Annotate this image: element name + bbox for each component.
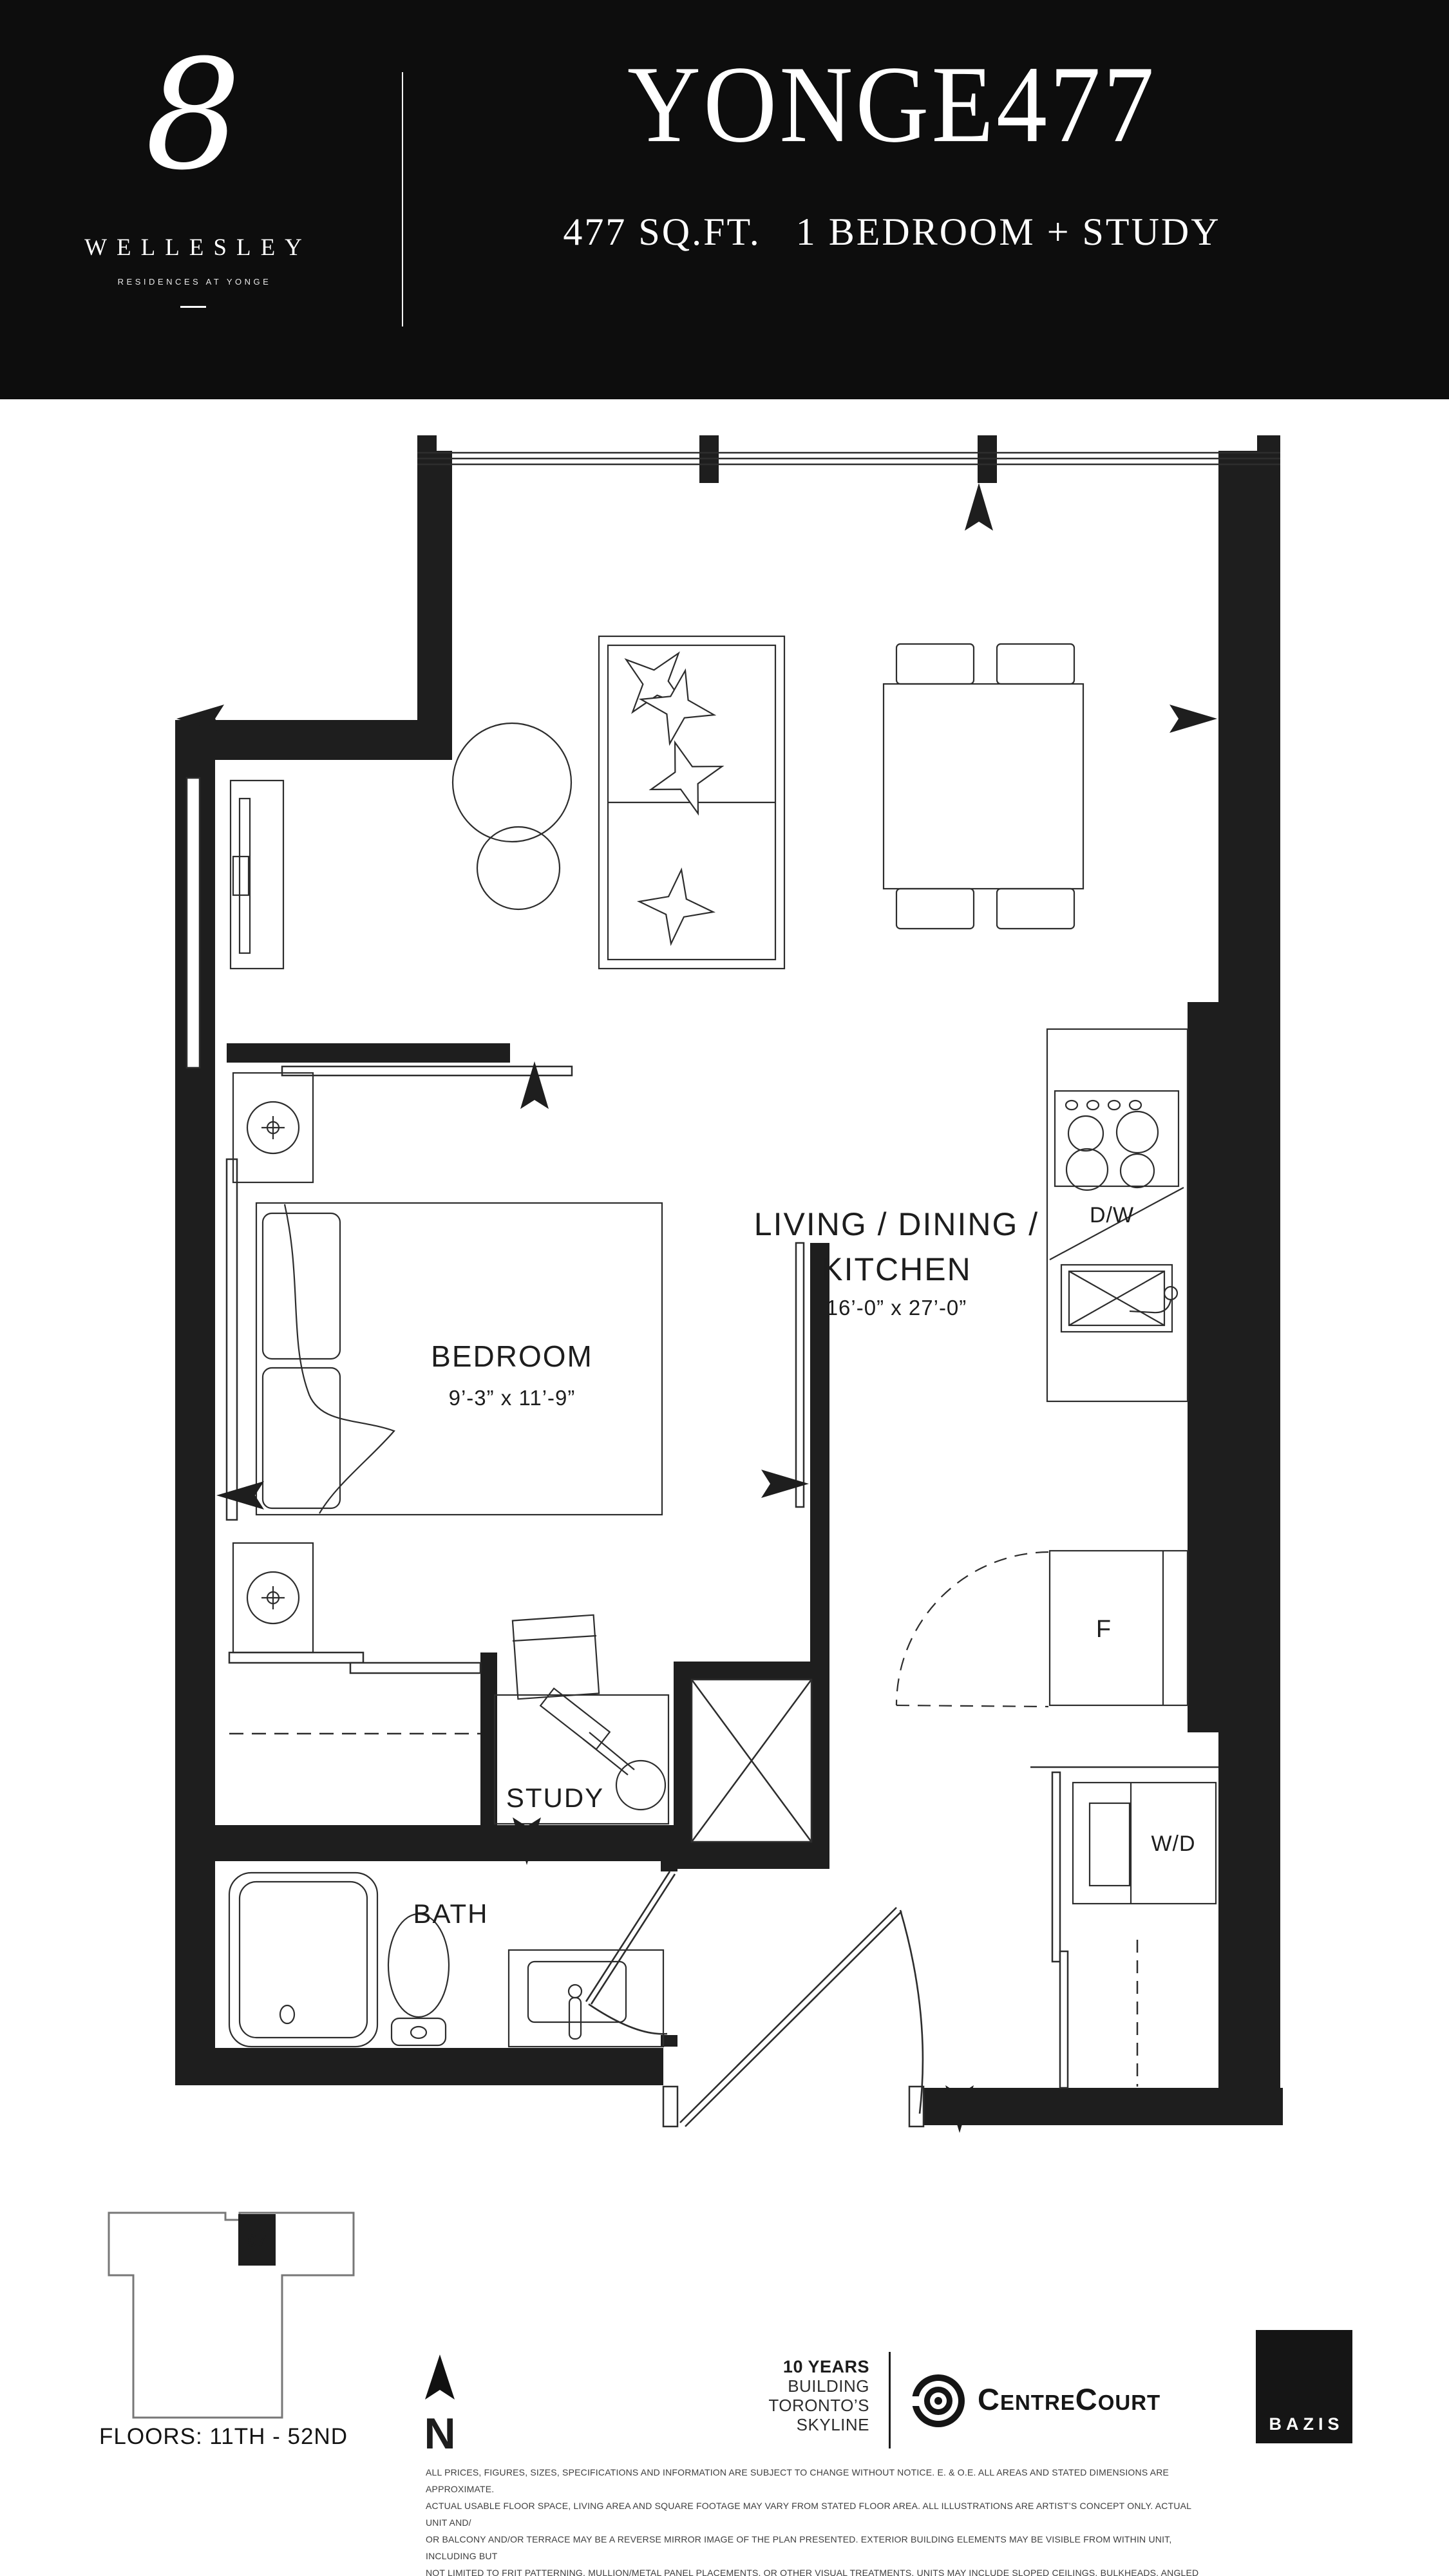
arrow-right-living	[1170, 705, 1217, 733]
toilet-bowl	[388, 1914, 449, 2017]
window-wall-glazing	[417, 453, 1280, 464]
star-pillow	[634, 864, 718, 949]
side-table	[453, 723, 571, 842]
desk-lamp-arm	[589, 1732, 634, 1770]
living-furniture	[231, 630, 1083, 969]
sofa-pillows	[603, 630, 734, 949]
bedroom-dims: 9’-3” x 11’-9”	[449, 1386, 576, 1410]
tagline-line: 10 YEARS	[741, 2357, 869, 2376]
compass: N	[424, 2354, 455, 2458]
faucet-head	[569, 1985, 582, 1998]
shaft	[692, 1680, 811, 1842]
wall-kitchen-back	[1188, 1002, 1218, 1732]
disclaimer-line: NOT LIMITED TO FRIT PATTERNING, MULLION/…	[426, 2564, 1208, 2576]
bath-door-leaf	[591, 1874, 675, 2004]
entry-door-leaf	[680, 1908, 896, 2123]
study-chair-line	[513, 1636, 596, 1641]
keyplan-outline	[109, 2213, 354, 2418]
dishwasher-label: D/W	[1090, 1203, 1134, 1227]
study-chair	[513, 1615, 599, 1699]
side-table-small	[477, 827, 560, 909]
living-dims: 16’-0” x 27’-0”	[826, 1296, 967, 1320]
bath-door-jamb-top	[661, 1860, 677, 1871]
lamp-crosshair	[261, 1116, 285, 1139]
toilet-tank	[392, 2018, 446, 2045]
cooktop-burners	[1066, 1112, 1158, 1190]
washer-dryer-label: W/D	[1151, 1832, 1195, 1856]
footer-divider	[889, 2352, 891, 2448]
centrecourt-logo-icon	[904, 2374, 965, 2427]
keyplan: 07	[109, 2213, 354, 2418]
dining-chair	[997, 644, 1074, 684]
floorplan-sheet: 8 WELLESLEY RESIDENCES AT YONGE YONGE477…	[0, 0, 1449, 2576]
bedroom-door-panel	[796, 1243, 804, 1507]
pillow	[263, 1213, 340, 1359]
wall-bath-top	[175, 1825, 675, 1861]
keyplan-unit-number: 07	[247, 2231, 267, 2250]
closet-slider-track-2	[350, 1663, 480, 1673]
disclaimer-line: ALL PRICES, FIGURES, SIZES, SPECIFICATIO…	[426, 2464, 1208, 2497]
desk-lamp-arm	[583, 1739, 628, 1775]
living-label-line1: LIVING / DINING /	[754, 1206, 1039, 1242]
wall-right	[1218, 451, 1280, 2125]
fridge	[1050, 1551, 1188, 1705]
floorplan-drawing: LIVING / DINING / KITCHEN 16’-0” x 27’-0…	[0, 0, 1449, 2576]
window-left-bedroom	[227, 1159, 237, 1520]
star-pillow	[639, 731, 734, 825]
arrow-up-window	[965, 483, 993, 531]
washer-dryer-door	[1090, 1803, 1130, 1886]
bathtub	[229, 1873, 377, 2047]
walls	[175, 435, 1283, 2125]
window-left-living	[187, 778, 200, 1068]
fridge-label: F	[1096, 1616, 1112, 1643]
disclaimer-line: ACTUAL USABLE FLOOR SPACE, LIVING AREA A…	[426, 2497, 1208, 2531]
lamp-crosshair	[261, 1586, 285, 1609]
keyplan-floors-label: FLOORS: 11TH - 52ND	[98, 2424, 349, 2450]
dining-chair	[896, 889, 974, 929]
wall-topleft-column	[417, 451, 452, 760]
sink-faucet	[1164, 1287, 1177, 1300]
centrecourt-wordmark: CentreCourt	[978, 2382, 1160, 2417]
wall-bottom-left	[175, 2048, 663, 2085]
bathtub-inner	[240, 1882, 367, 2038]
wd-closet-panel-1	[1052, 1772, 1060, 1962]
pillow	[263, 1368, 340, 1508]
disclaimer-text: ALL PRICES, FIGURES, SIZES, SPECIFICATIO…	[426, 2464, 1208, 2576]
tv-console	[231, 781, 283, 969]
sink-basin	[528, 1962, 626, 2022]
cooktop	[1055, 1091, 1179, 1186]
tub-drain	[280, 2005, 294, 2023]
closet-slider-track-1	[229, 1653, 363, 1663]
bath-door-leaf	[586, 1871, 670, 2002]
tagline-line: TORONTO’S	[741, 2396, 869, 2415]
fridge-swing-arc	[896, 1552, 1048, 1705]
wall-bottom-right	[923, 2088, 1283, 2125]
tagline-line: BUILDING	[741, 2376, 869, 2396]
windows-and-sliders	[187, 778, 1068, 2126]
wd-closet-panel-2	[1060, 1951, 1068, 2088]
tv-console-box	[233, 857, 249, 895]
entry-door-leaf	[685, 1911, 902, 2126]
disclaimer-line: OR BALCONY AND/OR TERRACE MAY BE A REVER…	[426, 2531, 1208, 2564]
fridge-swing-line	[896, 1705, 1048, 1707]
north-label: N	[424, 2409, 455, 2458]
cooktop-knobs	[1066, 1101, 1141, 1110]
bedroom-label: BEDROOM	[431, 1340, 593, 1373]
faucet	[569, 1998, 581, 2039]
living-label-line2: KITCHEN	[821, 1251, 971, 1287]
bedroom-slider-track	[282, 1066, 572, 1075]
desk-lamp-head	[616, 1761, 665, 1810]
bath-door-arc	[589, 2004, 667, 2034]
tagline-block: 10 YEARS BUILDING TORONTO’S SKYLINE	[741, 2357, 869, 2434]
dining-chair	[896, 644, 974, 684]
dining-chair	[997, 889, 1074, 929]
bath-label: BATH	[413, 1899, 489, 1929]
bazis-wordmark: BAZIS	[1265, 2414, 1344, 2434]
tagline-line: SKYLINE	[741, 2415, 869, 2434]
wall-bedroom-divider	[227, 1043, 510, 1063]
plan-linework: LIVING / DINING / KITCHEN 16’-0” x 27’-0…	[109, 435, 1283, 2458]
bazis-logo: BAZIS	[1256, 2330, 1352, 2443]
vanity	[509, 1950, 663, 2047]
north-arrow-icon	[425, 2354, 455, 2400]
entry-jamb-left	[663, 2087, 677, 2126]
doors	[586, 1871, 923, 2126]
entry-door-arc	[900, 1910, 923, 2114]
dining-table	[884, 684, 1083, 889]
toilet-knob	[411, 2027, 426, 2038]
study-label: STUDY	[506, 1783, 604, 1813]
